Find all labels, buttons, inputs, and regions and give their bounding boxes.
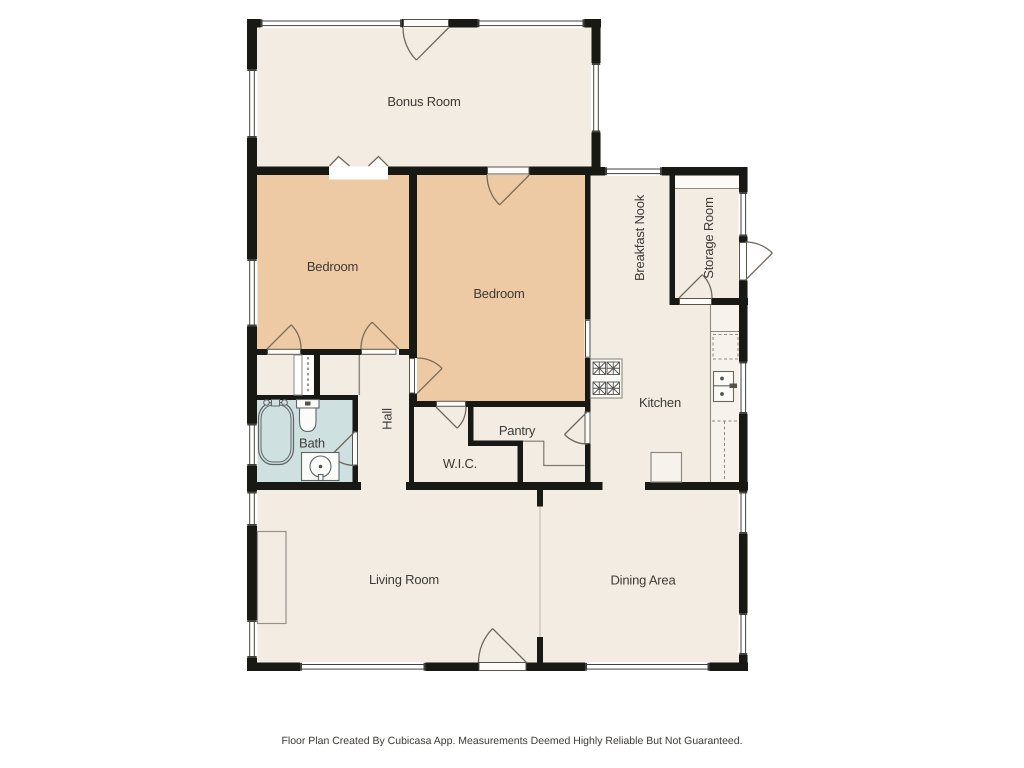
svg-text:Bonus Room: Bonus Room [387, 94, 460, 109]
svg-text:Storage Room: Storage Room [701, 197, 716, 278]
svg-text:Hall: Hall [380, 408, 395, 430]
svg-text:Kitchen: Kitchen [639, 395, 681, 410]
svg-text:Bath: Bath [299, 436, 325, 451]
svg-text:Pantry: Pantry [499, 423, 536, 438]
svg-text:Living Room: Living Room [369, 572, 439, 587]
svg-text:Dining Area: Dining Area [610, 573, 676, 588]
svg-text:Bedroom: Bedroom [473, 286, 524, 301]
svg-text:Breakfast Nook: Breakfast Nook [632, 194, 647, 281]
svg-text:W.I.C.: W.I.C. [443, 456, 477, 471]
svg-text:Bedroom: Bedroom [307, 259, 358, 274]
svg-text:Floor Plan Created By Cubicasa: Floor Plan Created By Cubicasa App. Meas… [281, 735, 742, 747]
